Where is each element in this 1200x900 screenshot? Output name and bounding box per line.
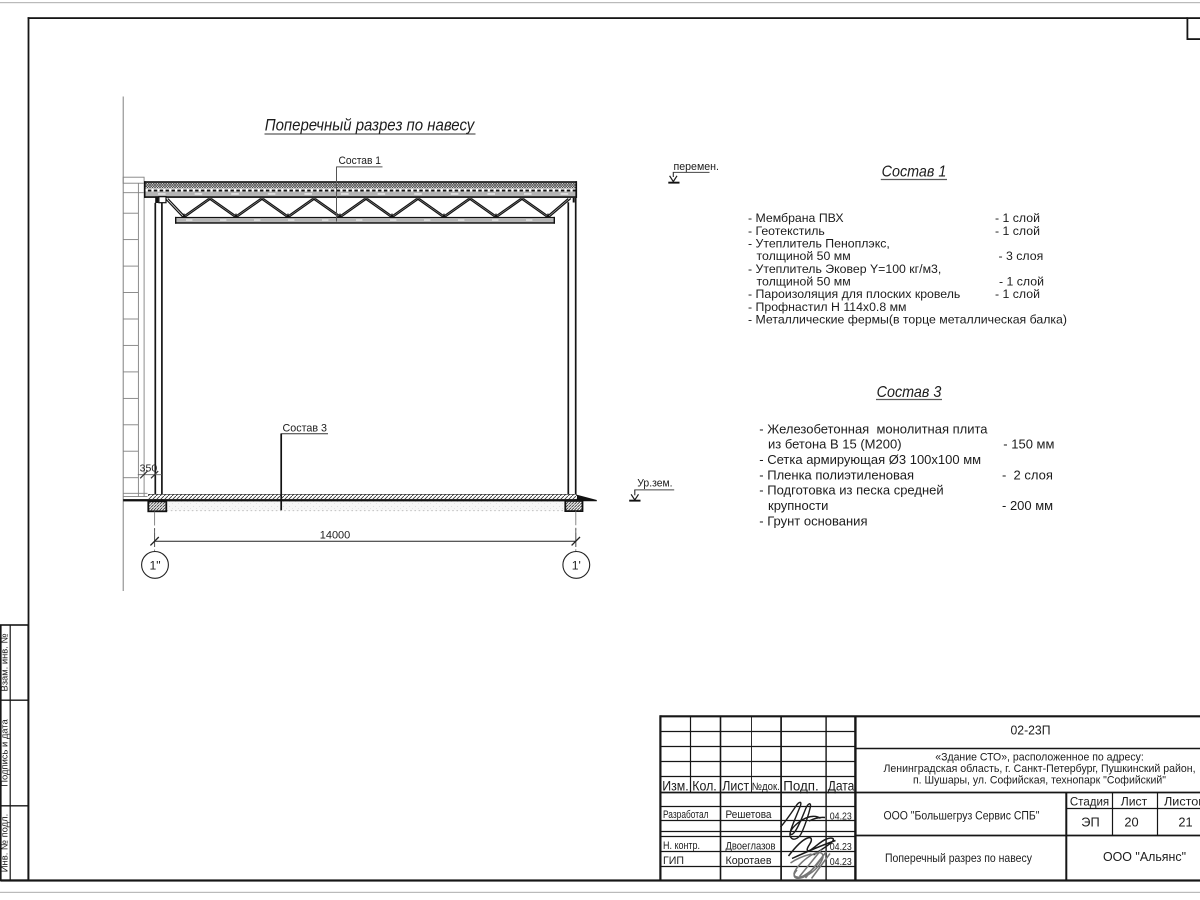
- svg-text:- Пленка полиэтиленовая: - Пленка полиэтиленовая: [759, 467, 914, 482]
- svg-text:п. Шушары, ул. Софийская, техн: п. Шушары, ул. Софийская, технопарк "Соф…: [913, 775, 1166, 787]
- svg-text:Н. контр.: Н. контр.: [663, 840, 700, 852]
- svg-text:Дата: Дата: [828, 778, 855, 793]
- svg-text:крупности: крупности: [768, 498, 828, 513]
- svg-text:Двоеглазов: Двоеглазов: [726, 840, 776, 852]
- svg-text:перемен.: перемен.: [674, 161, 720, 173]
- svg-text:Коротаев: Коротаев: [726, 855, 772, 867]
- svg-text:- 3 слоя: - 3 слоя: [999, 249, 1044, 263]
- svg-text:04.23: 04.23: [830, 811, 852, 822]
- svg-text:Листов: Листов: [1164, 794, 1200, 808]
- svg-text:21: 21: [1178, 814, 1192, 829]
- svg-text:Решетова: Решетова: [726, 809, 772, 821]
- svg-text:Ур.зем.: Ур.зем.: [637, 478, 672, 490]
- svg-text:- 150 мм: - 150 мм: [1003, 437, 1054, 452]
- svg-text:- Металлические фермы(в торце: - Металлические фермы(в торце металличес…: [748, 312, 1067, 326]
- svg-text:Инв. № подл.: Инв. № подл.: [0, 814, 9, 872]
- svg-text:- Сетка армирующая Ø3 100х100: - Сетка армирующая Ø3 100х100 мм: [759, 452, 981, 467]
- svg-text:- 200 мм: - 200 мм: [1002, 498, 1053, 513]
- svg-text:Ленинградская область, г. Санк: Ленинградская область, г. Санкт-Петербур…: [884, 763, 1196, 775]
- svg-text:20: 20: [1124, 814, 1138, 829]
- svg-text:«Здание СТО», расположенное по: «Здание СТО», расположенное по адресу:: [935, 752, 1144, 764]
- svg-text:14000: 14000: [320, 529, 351, 541]
- svg-text:Изм.: Изм.: [662, 778, 689, 793]
- svg-text:Разработал: Разработал: [663, 809, 709, 821]
- svg-text:ЭП: ЭП: [1081, 814, 1099, 829]
- svg-text:ООО "Большегруз Сервис СПБ": ООО "Большегруз Сервис СПБ": [884, 810, 1040, 823]
- svg-text:- Грунт основания: - Грунт основания: [759, 513, 867, 528]
- svg-text:1': 1': [572, 558, 581, 572]
- svg-text:- 1 слой: - 1 слой: [995, 224, 1040, 238]
- svg-text:Состав 1: Состав 1: [339, 155, 382, 167]
- svg-text:- Подготовка из песка средней: - Подготовка из песка средней: [759, 483, 943, 498]
- svg-text:350: 350: [140, 463, 158, 474]
- svg-text:Подпись и дата: Подпись и дата: [0, 719, 9, 787]
- svg-text:Лист: Лист: [722, 778, 749, 793]
- svg-text:Поперечный разрез по навесу: Поперечный разрез по навесу: [885, 852, 1032, 865]
- svg-text:1": 1": [149, 558, 160, 572]
- svg-text:Подп.: Подп.: [783, 778, 819, 793]
- svg-text:Взам. инв. №: Взам. инв. №: [0, 633, 9, 691]
- svg-text:Состав 3: Состав 3: [283, 422, 328, 434]
- svg-text:Стадия: Стадия: [1070, 794, 1109, 808]
- svg-text:№док.: №док.: [752, 781, 780, 793]
- svg-text:- Железобетонная монолитная п: - Железобетонная монолитная плита: [759, 421, 988, 436]
- svg-text:ООО "Альянс": ООО "Альянс": [1103, 849, 1186, 864]
- svg-text:из бетона В 15 (М200): из бетона В 15 (М200): [768, 437, 902, 452]
- svg-text:02-23П: 02-23П: [1011, 723, 1051, 738]
- svg-text:Кол.: Кол.: [692, 778, 717, 793]
- svg-text:04.23: 04.23: [830, 857, 852, 868]
- svg-text:Лист: Лист: [1121, 794, 1148, 808]
- svg-text:ГИП: ГИП: [663, 855, 684, 867]
- svg-text:04.23: 04.23: [830, 842, 852, 853]
- svg-text:Поперечный разрез по навесу: Поперечный разрез по навесу: [265, 117, 475, 135]
- svg-text:- 1 слой: - 1 слой: [995, 287, 1040, 301]
- svg-text:- 2 слоя: - 2 слоя: [1002, 467, 1053, 482]
- svg-text:Состав 3: Состав 3: [877, 384, 942, 401]
- svg-text:Состав 1: Состав 1: [882, 164, 947, 181]
